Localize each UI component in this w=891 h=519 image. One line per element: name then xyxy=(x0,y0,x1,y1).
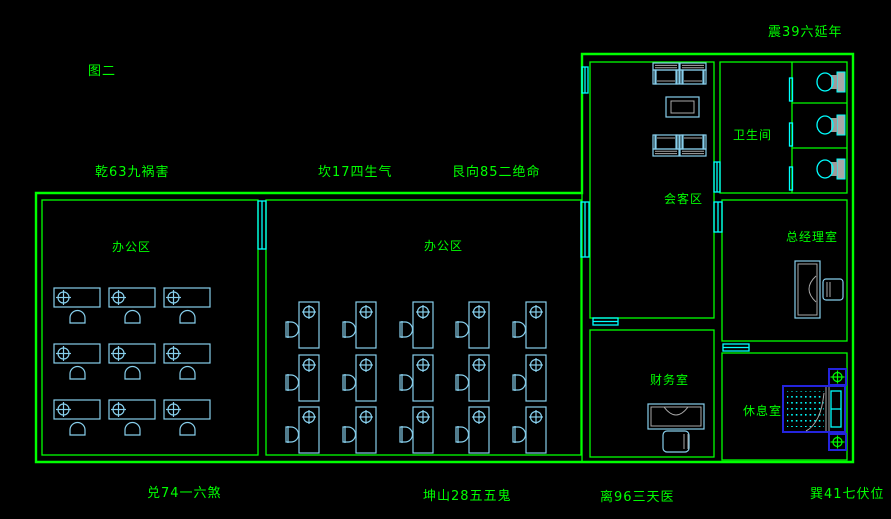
windows-and-doors xyxy=(258,67,793,351)
workstation-desk xyxy=(343,302,376,348)
fengshui-label-zhen: 震39六延年 xyxy=(768,25,843,40)
office-chair xyxy=(663,431,689,452)
sofa-chair xyxy=(653,135,679,156)
labels: 图二 乾63九祸害 坎17四生气 艮向85二绝命 震39六延年 兑74一六煞 坤… xyxy=(88,25,885,505)
rest-room-furniture xyxy=(783,369,846,450)
cad-drawing-canvas[interactable]: 图二 乾63九祸害 坎17四生气 艮向85二绝命 震39六延年 兑74一六煞 坤… xyxy=(0,0,891,519)
workstation-desk xyxy=(456,302,489,348)
coffee-table-top xyxy=(671,101,694,113)
finance-furniture xyxy=(648,404,704,452)
workstation-desk xyxy=(109,400,155,435)
toilet xyxy=(817,159,845,179)
building-walls xyxy=(36,54,853,462)
door xyxy=(723,344,749,351)
workstation-desk xyxy=(54,400,100,435)
workstation-desk xyxy=(164,344,210,379)
workstation-desk xyxy=(456,407,489,453)
workstation-desk xyxy=(109,288,155,323)
fengshui-label-xun: 巽41七伏位 xyxy=(810,487,885,502)
office-left-desks xyxy=(54,288,210,435)
workstation-desk xyxy=(400,407,433,453)
office-center-desks xyxy=(286,302,546,453)
room-general-manager xyxy=(722,200,847,341)
gm-office-furniture xyxy=(795,261,843,318)
workstation-desk xyxy=(513,355,546,401)
door xyxy=(593,318,618,325)
sofa-chair xyxy=(680,63,706,84)
fengshui-label-qian: 乾63九祸害 xyxy=(95,164,170,180)
workstation-desk xyxy=(109,344,155,379)
door xyxy=(714,202,722,232)
room-label-reception: 会客区 xyxy=(664,191,703,206)
workstation-desk xyxy=(343,355,376,401)
room-label-office-left: 办公区 xyxy=(112,239,151,254)
figure-label: 图二 xyxy=(88,64,116,79)
workstation-desk xyxy=(513,407,546,453)
fengshui-label-li: 离96三天医 xyxy=(600,489,675,505)
fengshui-label-kan: 坎17四生气 xyxy=(318,164,393,180)
toilet xyxy=(817,72,845,92)
toilet xyxy=(817,115,845,135)
room-office-left xyxy=(42,200,258,455)
workstation-desk xyxy=(456,355,489,401)
workstation-desk xyxy=(164,288,210,323)
nightstand xyxy=(829,369,846,385)
sofa-chair xyxy=(653,63,679,84)
room-finance xyxy=(590,330,714,457)
workstation-desk xyxy=(54,288,100,323)
stall-door xyxy=(790,78,793,190)
finance-desk xyxy=(648,404,704,429)
bathroom-fixtures xyxy=(817,72,845,179)
fengshui-label-dui: 兑74一六煞 xyxy=(147,486,222,501)
bed-mattress xyxy=(787,391,824,427)
executive-desk xyxy=(795,261,820,318)
office-chair xyxy=(823,279,843,300)
sofa-chair xyxy=(680,135,706,156)
workstation-desk xyxy=(343,407,376,453)
workstation-desk xyxy=(286,302,319,348)
room-reception xyxy=(590,62,714,318)
workstation-desk xyxy=(164,400,210,435)
outer-wall xyxy=(36,54,853,462)
room-label-office-center: 办公区 xyxy=(424,238,463,253)
fengshui-label-gen: 艮向85二绝命 xyxy=(452,164,541,180)
room-label-rest: 休息室 xyxy=(743,403,782,418)
workstation-desk xyxy=(400,355,433,401)
fengshui-label-kun: 坤山28五五鬼 xyxy=(423,488,512,504)
room-label-finance: 财务室 xyxy=(650,372,689,387)
workstation-desk xyxy=(54,344,100,379)
workstation-desk xyxy=(400,302,433,348)
door xyxy=(714,162,720,192)
window xyxy=(258,201,266,249)
room-label-bathroom: 卫生间 xyxy=(733,128,772,142)
workstation-desk xyxy=(286,407,319,453)
workstation-desk xyxy=(286,355,319,401)
reception-furniture xyxy=(653,63,706,156)
room-label-general-manager: 总经理室 xyxy=(786,229,838,244)
nightstand xyxy=(829,434,846,450)
workstation-desk xyxy=(513,302,546,348)
